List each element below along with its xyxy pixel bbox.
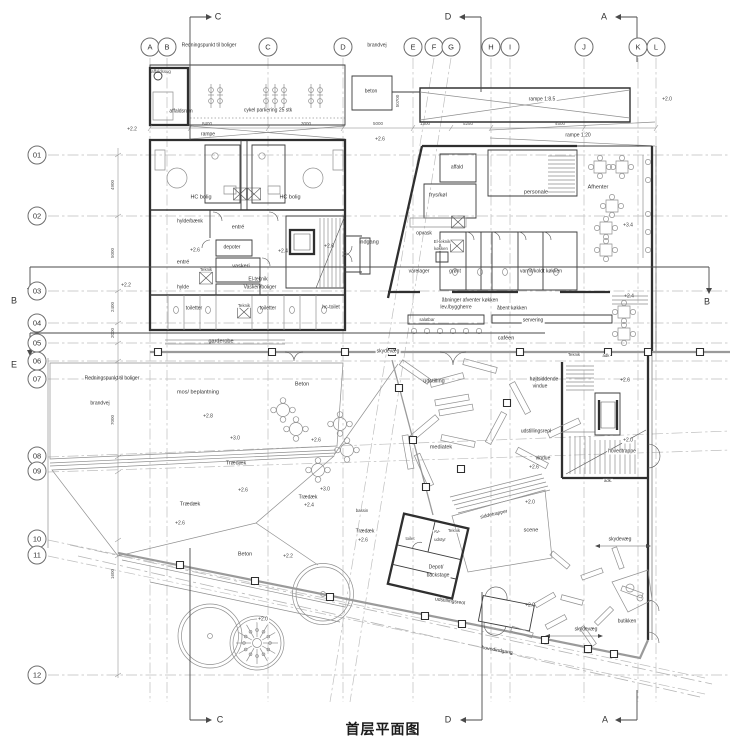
lbl-opvask: opvask <box>416 232 432 237</box>
lbl-entre-1: entré <box>232 225 245 231</box>
section-marker-c-bottom: C <box>217 716 224 725</box>
terraces <box>48 358 398 622</box>
dim-v-2400: 2400 <box>111 302 116 312</box>
lbl-depoter: depoter <box>224 246 241 251</box>
lbl-skydevaeg-3: skydevæg <box>575 628 598 633</box>
dim-v-4900: 4900 <box>111 180 116 190</box>
lbl-lvl-26-k: +2.6 <box>620 379 630 384</box>
lbl-mediatek: mediatek <box>430 445 452 451</box>
lbl-traedaek-3: Trædæk <box>299 496 318 501</box>
lbl-hc-bolig-1: HC bolig <box>190 195 211 201</box>
lbl-hylde-baenk: hylde/bænk <box>177 220 203 225</box>
lbl-el-teknik-k1: El-teknik <box>433 240 451 244</box>
lbl-redningspunkt-left: Redningspunkt til boliger <box>85 377 140 382</box>
grid-bubble-col-b: B <box>158 38 177 57</box>
section-marker-b-right: B <box>704 298 710 307</box>
lbl-teknik-2: Teknik <box>237 304 251 308</box>
lbl-el-teknik-2: Vaskeri/boliger <box>244 286 277 291</box>
lbl-lvl-22-left: +2.2 <box>121 284 131 289</box>
lbl-afhenter: Afhenter <box>588 185 609 191</box>
lbl-lvl-22-sw: +2.2 <box>283 555 293 560</box>
lbl-servering: servering <box>522 319 545 324</box>
dim-5250: 5250 <box>463 122 473 127</box>
lbl-hoejtsiddende: højtsiddende <box>530 378 559 383</box>
lbl-varmt-koldt: varmt/koldt køkken <box>520 270 562 275</box>
section-marker-a-bottom: A <box>602 716 608 725</box>
lbl-adk-2: adk. <box>603 479 613 483</box>
lbl-lvl-26-vindue: +2.6 <box>529 466 539 471</box>
lbl-aabninger-2: lev./byggherre <box>440 306 471 311</box>
grid-bubble-col-j: J <box>575 38 594 57</box>
spoked-tree-icon <box>230 616 284 670</box>
lbl-butikken: butikken <box>618 620 637 625</box>
lbl-rampe: rampe <box>201 133 215 138</box>
lbl-frys-koel: frys/køl <box>429 193 447 199</box>
lbl-indgang: indgang <box>359 240 379 246</box>
lbl-affaldsrum: affaldsrum <box>169 110 192 115</box>
lbl-av-2: udstyr <box>433 538 447 542</box>
lbl-lvl-26-t2: +2.6 <box>175 522 185 527</box>
dim-1300: 1300 <box>420 122 430 127</box>
grid-bubble-row-11: 11 <box>28 546 47 565</box>
grid-bubble-row-09: 09 <box>28 462 47 481</box>
lbl-lvl-22-rampe: +2.2 <box>127 128 137 133</box>
lbl-traedaek-1: Trædæk <box>226 461 247 467</box>
grid-bubble-row-01: 01 <box>28 146 47 165</box>
lbl-toiletter-1: toiletter <box>186 307 202 312</box>
lbl-brandvej-left: brandvej <box>90 402 109 407</box>
section-marker-d-top: D <box>445 13 452 22</box>
lbl-vindue-1: vindue <box>533 385 548 390</box>
lbl-lvl-26-entre: +2.6 <box>190 249 200 254</box>
dim-v-7000: 7000 <box>111 415 116 425</box>
lbl-salatbar: salatbar <box>418 318 435 322</box>
dimension-lines <box>115 125 658 678</box>
lbl-garderobe: garderobe <box>208 339 233 345</box>
lbl-traedaek-4: Trædæk <box>356 530 375 535</box>
floor-plan-drawing <box>0 0 750 745</box>
lbl-groent: grønt <box>449 270 461 275</box>
lbl-el-teknik-k2: køkken <box>433 247 449 251</box>
lbl-personale: personale <box>524 190 548 196</box>
lbl-lvl-20-trappe: +2.0 <box>622 439 634 444</box>
lbl-hylde: hylde <box>177 286 189 291</box>
grid-bubble-col-h: H <box>482 38 501 57</box>
lbl-affald: affald <box>451 166 463 171</box>
lbl-lvl-28: +2.8 <box>203 415 213 420</box>
lbl-vindue-2: vindue <box>536 457 551 462</box>
lbl-brandvej-top: brandvej <box>367 44 386 49</box>
lbl-toiletter-2: toiletter <box>260 307 276 312</box>
lbl-lvl-30-1: +3.0 <box>230 437 240 442</box>
lbl-scene: scene <box>524 528 539 534</box>
lbl-lvl-20-ind: +2.0 <box>525 604 535 609</box>
lbl-adk-1: adk <box>602 354 611 358</box>
lbl-aabninger-1: åbninger afventer køkken <box>442 299 498 304</box>
floorplan-sheet: A B C D E F G H I J K L 01 02 03 04 05 0… <box>0 0 750 745</box>
grid-bubble-row-06: 06 <box>28 352 47 371</box>
lbl-beton-1: Beton <box>295 382 309 388</box>
lbl-lvl-26-t4: +2.6 <box>358 539 368 544</box>
residential-block <box>150 140 370 344</box>
grid-bubble-col-l: L <box>647 38 666 57</box>
section-marker-b-left: B <box>11 297 17 306</box>
lbl-rampe-120: rampe 1:20 <box>565 134 590 139</box>
dim-v-2000: 2000 <box>111 328 116 338</box>
dim-8400: 8400 <box>202 122 212 127</box>
section-lines <box>27 14 712 723</box>
lbl-bassin: bassin <box>356 509 368 513</box>
dim-5000: 5000 <box>373 122 383 127</box>
lbl-lvl-26-ind: +2.6 <box>324 245 334 250</box>
lbl-teknik-3: Teknik <box>567 353 581 357</box>
column-markers <box>155 349 704 658</box>
grid-bubble-col-k: K <box>629 38 648 57</box>
lbl-lvl-26-c1: +2.6 <box>311 439 321 444</box>
grid-bubble-row-03: 03 <box>28 282 47 301</box>
lbl-lvl-24-res: +2.4 <box>278 250 288 255</box>
lbl-toilet: toilet <box>404 537 415 541</box>
lbl-udstilling: udstilling <box>423 379 444 385</box>
lbl-lvl-34-cafe: +3.4 <box>623 224 633 229</box>
lbl-traedaek-2: Trædæk <box>180 502 201 508</box>
cafe-furniture <box>271 155 651 482</box>
grid-bubble-col-c: C <box>259 38 278 57</box>
lbl-affaldssug: affaldssug <box>151 70 171 74</box>
lbl-lvl-20-scene: +2.0 <box>525 501 535 506</box>
section-marker-c-top: C <box>215 13 222 22</box>
drawing-title: 首层平面图 <box>346 719 421 739</box>
grid-bubble-row-05: 05 <box>28 334 47 353</box>
ramp-top-right <box>392 88 655 146</box>
dim-4500: 4500 <box>555 122 565 127</box>
grid-bubble-row-04: 04 <box>28 314 47 333</box>
lbl-lvl-20-tree: +2.0 <box>257 618 269 623</box>
lbl-teknik-4: Teknik <box>447 529 461 533</box>
lbl-lvl-30-2: +3.0 <box>320 488 330 493</box>
lbl-depot-1: Depot/ <box>428 566 445 571</box>
dim-ramp-50700: 50700 <box>396 95 401 108</box>
lbl-teknik-1: Teknik <box>199 268 213 272</box>
lbl-skydevaeg-2: skydevæg <box>608 538 633 543</box>
lbl-beton-2: Beton <box>238 552 252 558</box>
lbl-el-teknik-1: El-teknik <box>248 278 267 283</box>
lbl-lvl-20-rampe: +2.0 <box>662 98 672 103</box>
lbl-hc-toilet: hc-toilet <box>322 306 340 311</box>
lbl-udstillingsreol-1: udstillingsreol <box>521 430 551 435</box>
lbl-beton-small: beton <box>365 90 378 95</box>
dim-3000: 3000 <box>301 122 311 127</box>
dim-v-1600: 1600 <box>111 569 116 579</box>
lbl-hovedtrappe: hovedtrappe <box>607 450 637 455</box>
grid-bubble-col-g: G <box>442 38 461 57</box>
lbl-lvl-24-cafe: +2.4 <box>624 295 634 300</box>
grid-bubble-row-02: 02 <box>28 207 47 226</box>
lbl-mos-beplantning: mos/ beplantning <box>177 390 219 396</box>
grid-bubble-col-e: E <box>404 38 423 57</box>
lbl-av-1: AV- <box>433 530 442 534</box>
lbl-skydevaeg-1: skydevæg <box>376 350 401 355</box>
grid-bubble-col-d: D <box>334 38 353 57</box>
lbl-aabent-koekken: åbent køkken <box>497 307 527 312</box>
lbl-lvl-26-g: +2.6 <box>375 138 385 143</box>
lbl-rampe-185: rampe 1:8.5 <box>528 98 557 103</box>
dim-v-5000: 5000 <box>111 248 116 258</box>
section-marker-d-bottom: D <box>445 716 452 725</box>
lbl-lvl-26-t1: +2.6 <box>238 489 248 494</box>
lbl-varelager: varelager <box>409 270 430 275</box>
lbl-entre-2: entré <box>177 260 190 266</box>
section-marker-e-left: E <box>11 361 17 370</box>
lbl-redningspunkt-top: Redningspunkt til boliger <box>182 44 237 49</box>
grid-bubble-col-i: I <box>501 38 520 57</box>
grid-bubble-row-07: 07 <box>28 370 47 389</box>
lbl-lvl-24-t3: +2.4 <box>304 504 314 509</box>
lbl-vaskeri: vaskeri <box>232 264 249 270</box>
lbl-depot-2: backstage <box>426 574 451 579</box>
lbl-hc-bolig-2: HC bolig <box>279 195 300 201</box>
grid-bubble-row-12: 12 <box>28 666 47 685</box>
lbl-cafeen: caféen <box>498 336 515 342</box>
section-marker-a-top: A <box>601 13 607 22</box>
lbl-cykel-parkering: cykel parkering 25 stk <box>244 109 292 114</box>
